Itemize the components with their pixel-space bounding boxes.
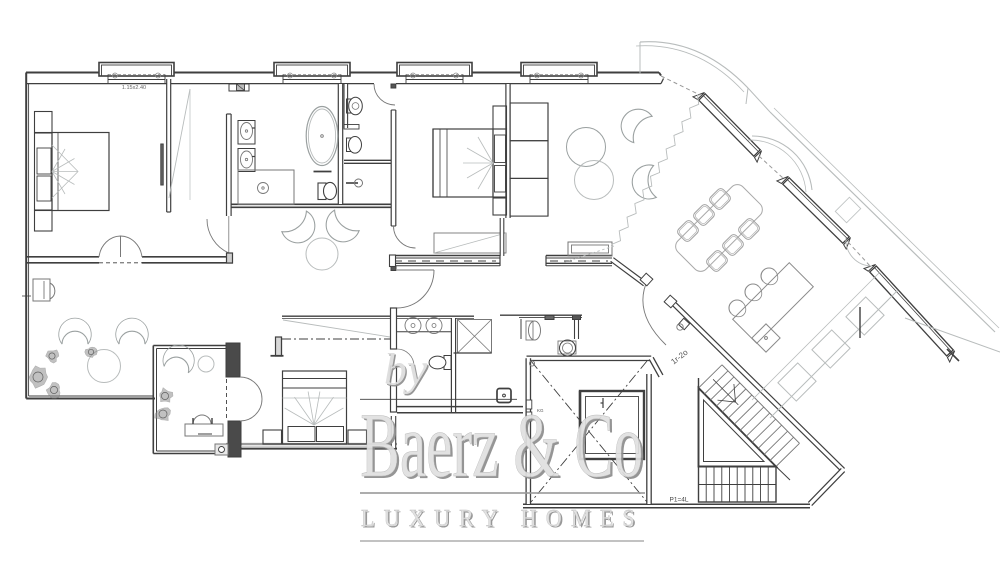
svg-text:1.15x2.40: 1.15x2.40 <box>122 85 146 91</box>
svg-text:LUXURY HOMES: LUXURY HOMES <box>361 506 644 532</box>
svg-text:Baerz & Co: Baerz & Co <box>360 394 643 496</box>
svg-text:P1=4L: P1=4L <box>670 497 689 504</box>
svg-text:by: by <box>384 343 428 394</box>
